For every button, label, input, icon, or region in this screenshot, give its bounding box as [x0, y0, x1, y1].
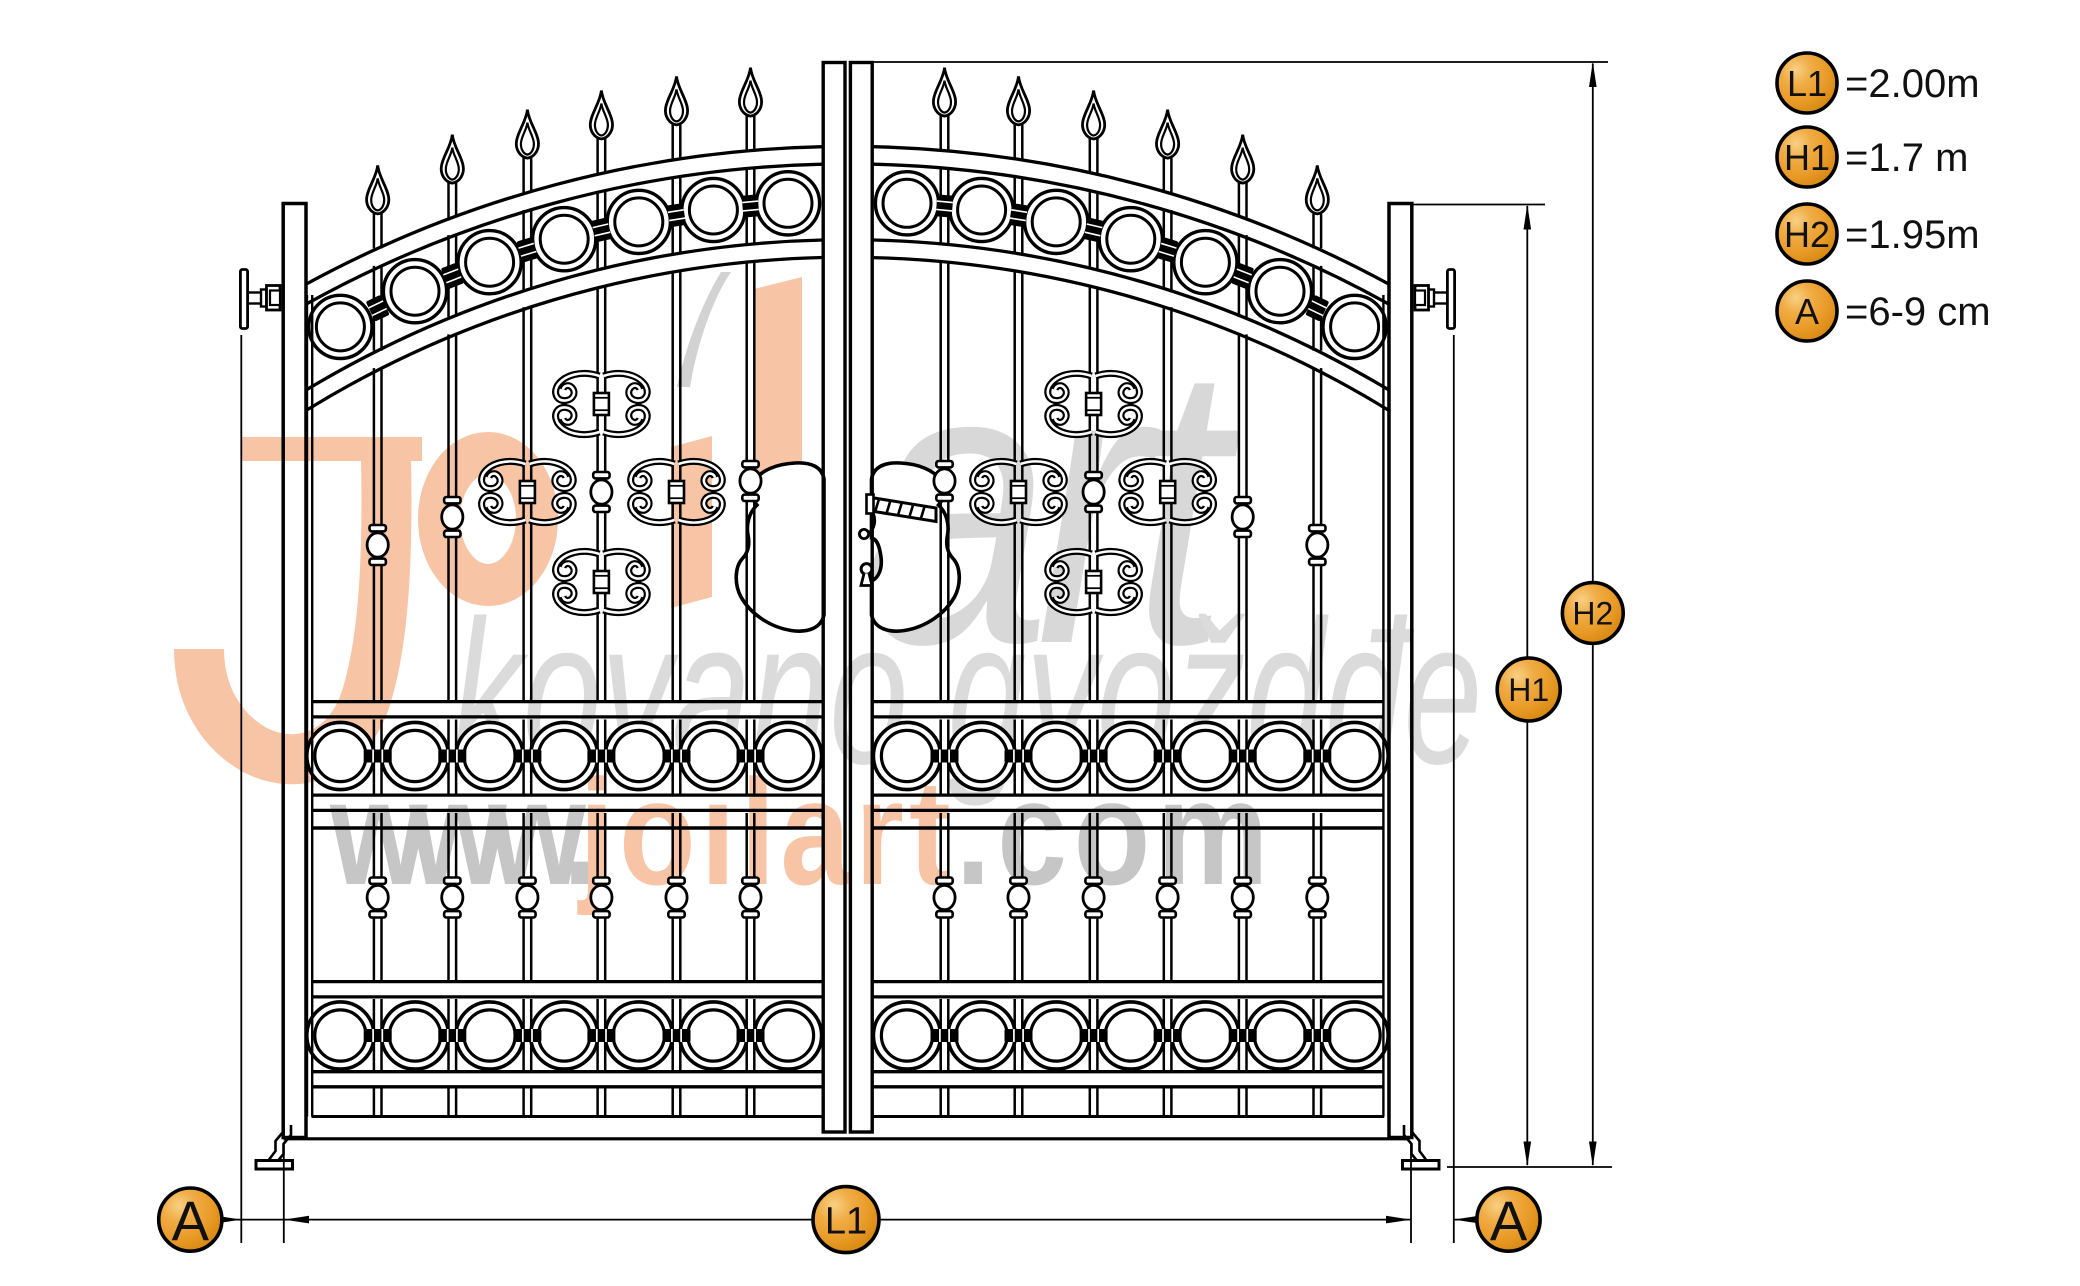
svg-text:H1: H1	[1508, 672, 1549, 708]
svg-text:=1.7 m: =1.7 m	[1845, 136, 1968, 180]
svg-text:H2: H2	[1572, 596, 1613, 632]
svg-text:L1: L1	[825, 1200, 867, 1242]
svg-text:H1: H1	[1784, 137, 1830, 178]
svg-text:=6-9 cm: =6-9 cm	[1845, 290, 1991, 334]
svg-text:=1.95m: =1.95m	[1845, 213, 1980, 257]
svg-text:A: A	[172, 1189, 210, 1252]
svg-text:L1: L1	[1787, 63, 1827, 104]
svg-text:A: A	[1490, 1189, 1528, 1252]
svg-text:H2: H2	[1784, 214, 1830, 255]
svg-text:A: A	[1795, 291, 1819, 332]
svg-text:=2.00m: =2.00m	[1845, 62, 1980, 106]
